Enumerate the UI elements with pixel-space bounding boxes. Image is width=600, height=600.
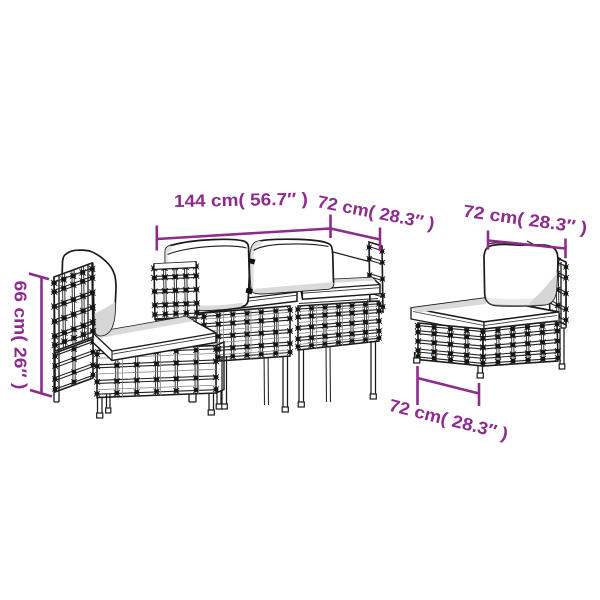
svg-text:144 cm( 56.7″ ): 144 cm( 56.7″ ) [174,189,308,211]
svg-text:66 cm( 26″ ): 66 cm( 26″ ) [11,281,31,390]
